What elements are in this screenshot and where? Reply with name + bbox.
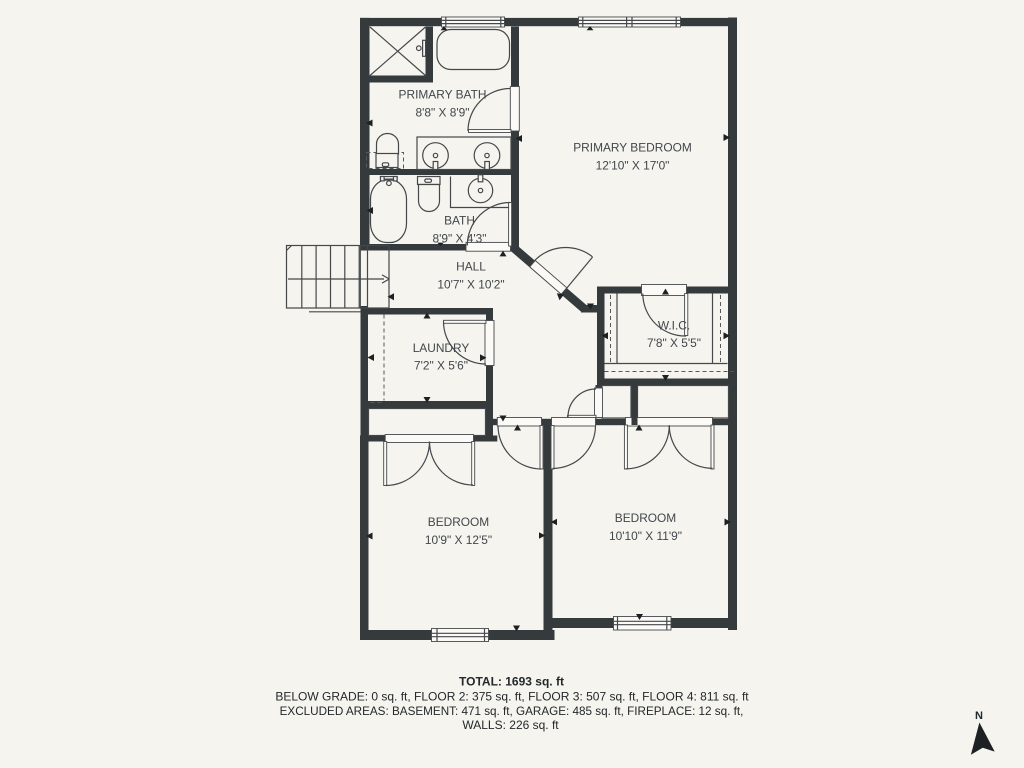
svg-text:BATH: BATH xyxy=(444,214,475,228)
svg-text:HALL: HALL xyxy=(456,260,486,274)
svg-text:PRIMARY BATH: PRIMARY BATH xyxy=(399,88,487,102)
svg-text:12'10" X 17'0": 12'10" X 17'0" xyxy=(596,158,670,172)
svg-text:BEDROOM: BEDROOM xyxy=(428,515,489,529)
svg-text:WALLS: 226 sq. ft: WALLS: 226 sq. ft xyxy=(462,718,559,732)
svg-text:10'10" X 11'9": 10'10" X 11'9" xyxy=(609,529,682,543)
svg-text:TOTAL: 1693 sq. ft: TOTAL: 1693 sq. ft xyxy=(459,675,564,689)
svg-text:7'8" X 5'5": 7'8" X 5'5" xyxy=(647,336,701,350)
svg-text:10'7" X 10'2": 10'7" X 10'2" xyxy=(437,277,504,291)
svg-text:BELOW GRADE: 0 sq. ft, FLOOR 2: BELOW GRADE: 0 sq. ft, FLOOR 2: 375 sq. … xyxy=(275,689,749,703)
svg-text:7'2" X 5'6": 7'2" X 5'6" xyxy=(414,359,468,373)
svg-text:W.I.C.: W.I.C. xyxy=(658,318,690,332)
svg-text:8'9" X 4'3": 8'9" X 4'3" xyxy=(433,231,487,245)
svg-text:PRIMARY BEDROOM: PRIMARY BEDROOM xyxy=(573,141,692,155)
svg-text:10'9" X 12'5": 10'9" X 12'5" xyxy=(425,533,492,547)
svg-text:EXCLUDED AREAS: BASEMENT: 471: EXCLUDED AREAS: BASEMENT: 471 sq. ft, GA… xyxy=(280,705,744,718)
svg-text:8'8" X 8'9": 8'8" X 8'9" xyxy=(416,105,470,119)
svg-text:N: N xyxy=(975,710,983,722)
svg-text:BEDROOM: BEDROOM xyxy=(615,511,676,525)
svg-text:LAUNDRY: LAUNDRY xyxy=(413,341,470,355)
